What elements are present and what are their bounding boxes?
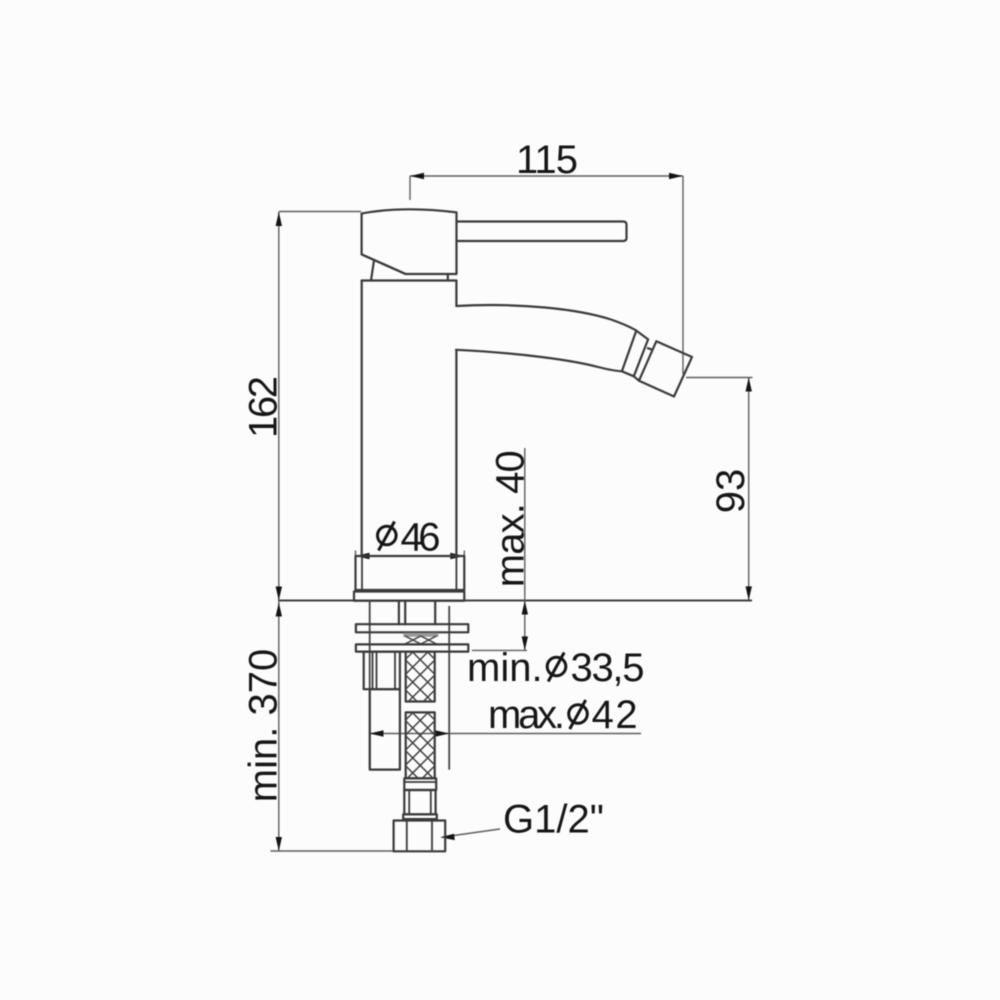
svg-text:G1/2": G1/2" [503,797,604,841]
svg-text:46: 46 [401,516,441,560]
svg-text:42: 42 [592,693,638,737]
svg-text:max.: max. [488,693,565,737]
svg-text:min.: min. [467,646,543,690]
svg-text:max. 40: max. 40 [489,450,533,587]
svg-text:33,5: 33,5 [571,646,645,690]
svg-text:162: 162 [242,376,286,438]
svg-text:93: 93 [709,469,753,514]
svg-text:115: 115 [516,138,578,182]
svg-text:min. 370: min. 370 [242,649,286,802]
